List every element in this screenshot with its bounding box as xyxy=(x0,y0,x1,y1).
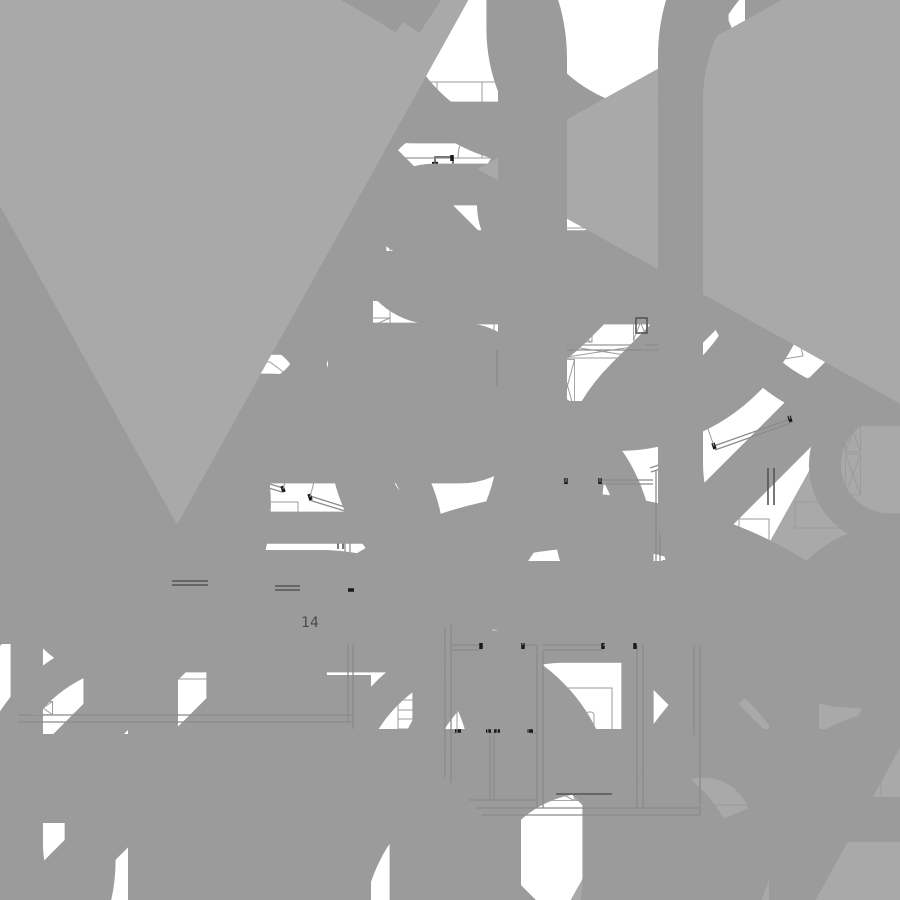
floor-plan-sheet: x x xyxy=(0,0,900,900)
floor-plan-drawing: x x xyxy=(0,0,900,900)
floor-badge-label: 14 xyxy=(301,615,319,631)
